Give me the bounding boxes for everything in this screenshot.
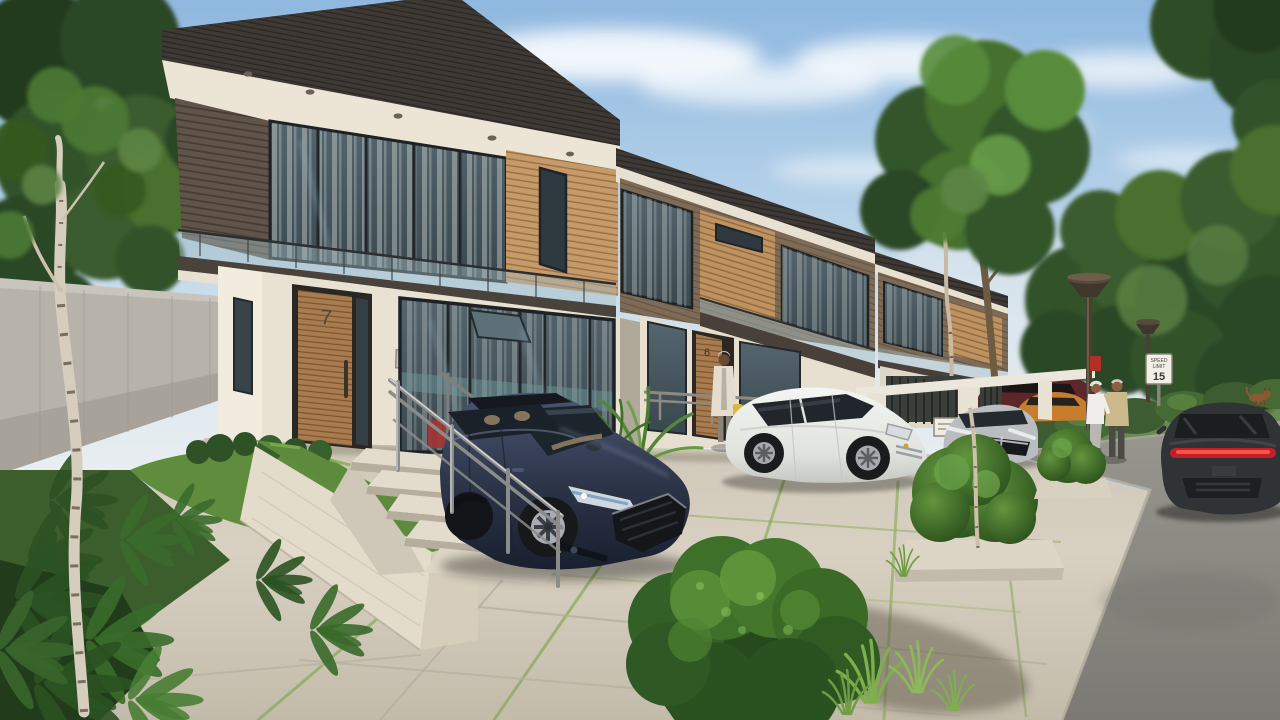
house-number-6: 6 [704,347,710,359]
scene-architectural-render: 7 [0,0,1280,720]
speed-sign-value: 15 [1153,371,1165,383]
house-number-7: 7 [320,306,333,330]
unit-1-slot-window [540,168,566,272]
speed-sign-line2: LIMIT [1153,364,1166,370]
door-handle [344,360,348,398]
charcoal-sports-car [1156,403,1280,523]
door-7: 7 [292,284,372,450]
red-sign [1090,356,1101,371]
